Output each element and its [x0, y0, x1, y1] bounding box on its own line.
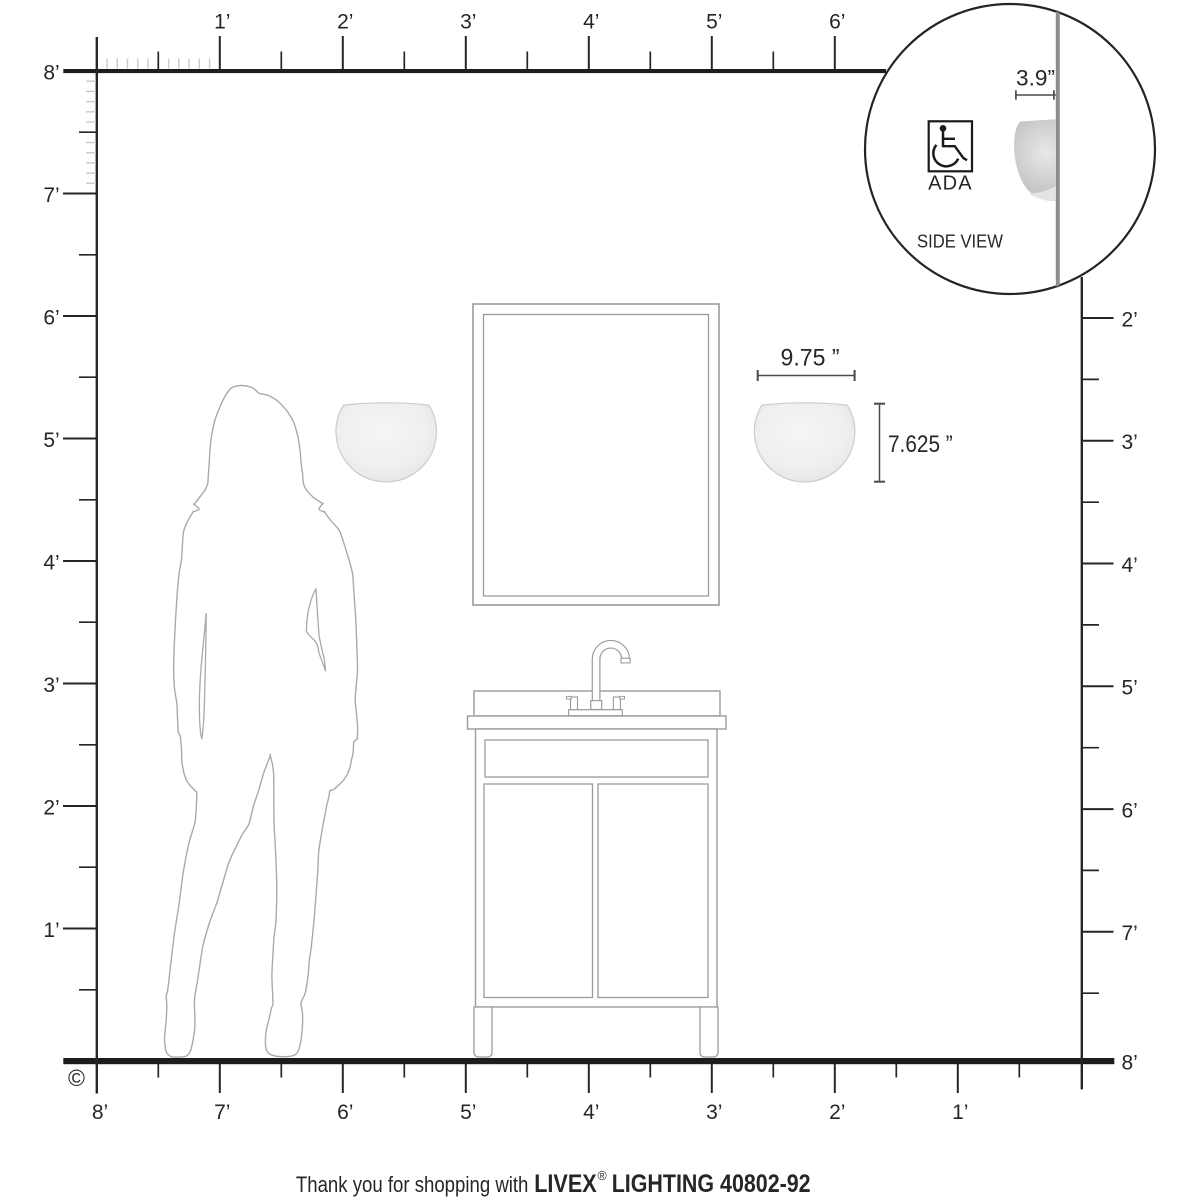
svg-text:4’: 4’ — [1122, 554, 1138, 577]
svg-text:©: © — [68, 1065, 85, 1091]
svg-text:7’: 7’ — [1122, 922, 1138, 945]
svg-text:1’: 1’ — [214, 11, 230, 34]
svg-text:8’: 8’ — [92, 1101, 108, 1124]
svg-text:6’: 6’ — [43, 307, 59, 330]
svg-text:ADA: ADA — [928, 172, 973, 194]
svg-text:1’: 1’ — [43, 919, 59, 942]
svg-text:7’: 7’ — [43, 184, 59, 207]
svg-text:LIGHTING 40802-92: LIGHTING 40802-92 — [612, 1170, 811, 1198]
svg-text:4’: 4’ — [43, 552, 59, 575]
svg-text:8’: 8’ — [1122, 1051, 1138, 1074]
svg-text:6’: 6’ — [337, 1101, 353, 1124]
svg-text:Thank you for shopping with: Thank you for shopping with — [296, 1172, 529, 1197]
svg-text:2’: 2’ — [337, 11, 353, 34]
svg-text:4’: 4’ — [583, 11, 599, 34]
svg-text:7.625 ”: 7.625 ” — [888, 431, 953, 458]
svg-text:3’: 3’ — [706, 1101, 722, 1124]
svg-text:3’: 3’ — [43, 674, 59, 697]
svg-text:2’: 2’ — [829, 1101, 845, 1124]
svg-text:5’: 5’ — [43, 429, 59, 452]
svg-text:3.9”: 3.9” — [1016, 66, 1055, 91]
svg-text:3’: 3’ — [460, 11, 476, 34]
svg-text:4’: 4’ — [583, 1101, 599, 1124]
svg-text:2’: 2’ — [43, 797, 59, 820]
svg-text:®: ® — [598, 1169, 608, 1183]
svg-text:9.75 ”: 9.75 ” — [781, 345, 840, 372]
svg-text:7’: 7’ — [214, 1101, 230, 1124]
svg-text:SIDE VIEW: SIDE VIEW — [917, 230, 1003, 251]
svg-text:5’: 5’ — [1122, 677, 1138, 700]
svg-text:6’: 6’ — [1122, 799, 1138, 822]
svg-text:LIVEX: LIVEX — [534, 1170, 597, 1198]
svg-text:8’: 8’ — [43, 62, 59, 85]
svg-text:1’: 1’ — [952, 1101, 968, 1124]
svg-text:5’: 5’ — [460, 1101, 476, 1124]
svg-text:5’: 5’ — [706, 11, 722, 34]
svg-text:3’: 3’ — [1122, 431, 1138, 454]
svg-text:6’: 6’ — [829, 11, 845, 34]
svg-text:2’: 2’ — [1122, 308, 1138, 331]
